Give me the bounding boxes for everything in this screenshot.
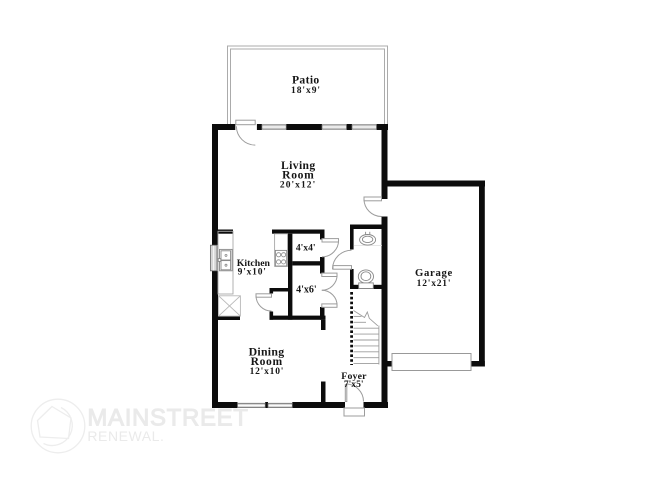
svg-text:18'x9': 18'x9'	[291, 86, 321, 96]
svg-text:Room: Room	[282, 169, 314, 182]
svg-text:RENEWAL.: RENEWAL.	[87, 428, 164, 444]
svg-text:20'x12': 20'x12'	[280, 181, 316, 191]
svg-text:12'x21': 12'x21'	[417, 279, 452, 289]
svg-text:12'x10': 12'x10'	[250, 367, 285, 377]
svg-text:4'x6': 4'x6'	[296, 284, 317, 295]
svg-text:4'x4': 4'x4'	[296, 242, 316, 253]
svg-text:Room: Room	[251, 355, 283, 368]
svg-text:7'x5': 7'x5'	[344, 379, 364, 390]
svg-text:Garage: Garage	[415, 267, 453, 279]
svg-text:Patio: Patio	[292, 74, 320, 87]
svg-text:9'x10': 9'x10'	[238, 267, 267, 277]
